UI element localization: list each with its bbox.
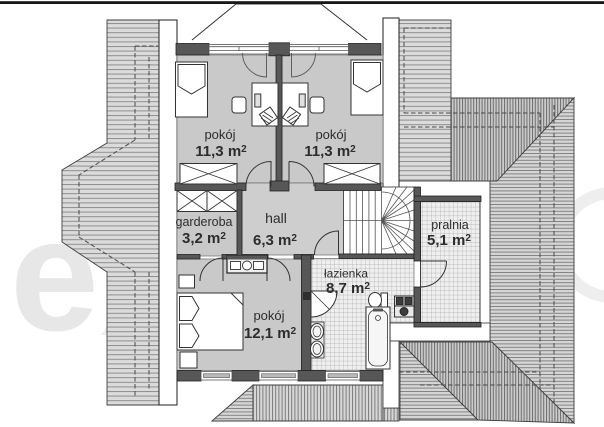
- svg-text:pralnia: pralnia: [431, 218, 469, 232]
- svg-text:łazienka: łazienka: [324, 267, 368, 281]
- svg-text:11,3 m2: 11,3 m2: [304, 143, 356, 160]
- svg-text:3,2 m2: 3,2 m2: [182, 230, 226, 247]
- svg-text:11,3 m2: 11,3 m2: [195, 143, 247, 160]
- svg-text:garderoba: garderoba: [176, 215, 233, 229]
- svg-text:6,3 m2: 6,3 m2: [253, 232, 297, 249]
- svg-text:hall: hall: [265, 210, 287, 226]
- svg-text:5,1 m2: 5,1 m2: [427, 232, 471, 249]
- svg-text:pokój: pokój: [204, 127, 235, 142]
- svg-text:pokój: pokój: [315, 127, 346, 142]
- svg-text:12,1 m2: 12,1 m2: [244, 325, 297, 342]
- svg-text:8,7 m2: 8,7 m2: [326, 280, 370, 297]
- svg-text:pokój: pokój: [253, 308, 284, 323]
